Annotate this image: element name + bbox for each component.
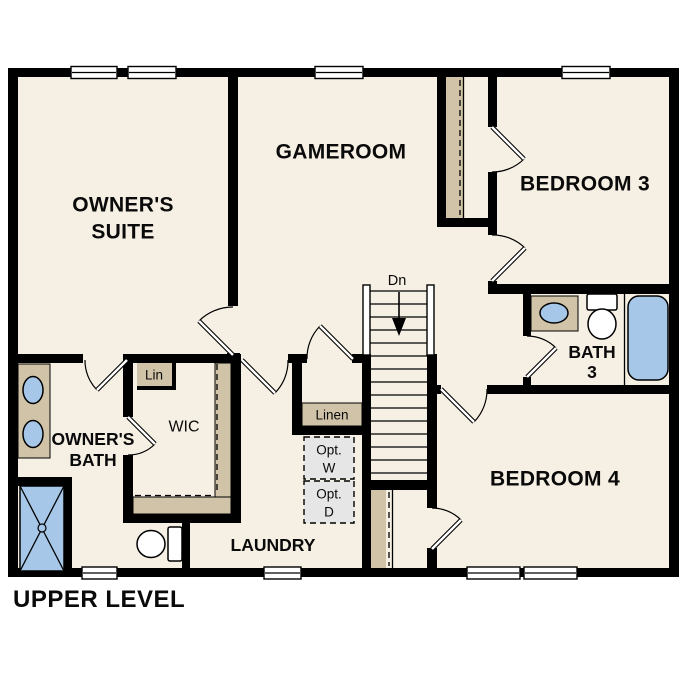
- window: [524, 567, 577, 579]
- optional-washer-label-line1: Opt.: [316, 443, 342, 458]
- window: [562, 67, 610, 79]
- optional-washer: Opt. W: [304, 437, 354, 479]
- bedroom3-closet-shelf: [446, 77, 464, 218]
- optional-washer-label-line2: W: [323, 461, 336, 476]
- stair-rail-right: [427, 285, 434, 355]
- optional-dryer: Opt. D: [304, 481, 354, 523]
- wall-stair-right: [427, 354, 437, 490]
- floorplan-page: Lin Linen Opt. W Opt. D: [0, 0, 687, 687]
- wall-suite-gameroom: [228, 77, 238, 306]
- lin-closet: Lin: [137, 363, 176, 390]
- room-label-wic: WIC: [168, 419, 199, 436]
- wall-wic-right: [231, 354, 241, 523]
- optional-dryer-label-line1: Opt.: [316, 487, 342, 502]
- room-label-owners-suite-line2: SUITE: [91, 221, 154, 244]
- owners-bath-shower: [20, 486, 64, 571]
- room-label-bedroom4: BEDROOM 4: [490, 468, 620, 491]
- lin-closet-label: Lin: [145, 368, 163, 383]
- room-label-laundry: LAUNDRY: [231, 535, 316, 555]
- window: [467, 567, 520, 579]
- room-label-bedroom3: BEDROOM 3: [520, 173, 650, 196]
- owners-bath-vanity: [18, 364, 50, 458]
- wall-bedroom4-north: [487, 385, 679, 394]
- linen-closet-label: Linen: [315, 408, 348, 423]
- stair-rail-left: [363, 285, 370, 355]
- room-label-bath3-line2: 3: [587, 362, 597, 382]
- stair-direction-label: Dn: [388, 273, 407, 289]
- window: [315, 67, 363, 79]
- window: [82, 567, 117, 579]
- bath3-tub: [628, 296, 668, 380]
- shower-drain-icon: [38, 524, 46, 532]
- floorplan-drawing: Lin Linen Opt. W Opt. D: [0, 0, 687, 687]
- room-label-gameroom: GAMEROOM: [276, 141, 407, 164]
- bath3-vanity: [531, 296, 578, 331]
- linen-closet: Linen: [302, 403, 362, 426]
- page-title: UPPER LEVEL: [13, 586, 185, 613]
- room-label-owners-bath-line2: BATH: [69, 450, 116, 470]
- sink-icon: [23, 421, 43, 448]
- window: [264, 567, 301, 579]
- bath3-toilet: [587, 294, 617, 339]
- wall-gameroom-closet: [437, 77, 446, 227]
- window: [71, 67, 117, 79]
- wall-bedroom3-south: [488, 284, 679, 294]
- wall-stair-left: [362, 354, 371, 568]
- sink-icon: [540, 303, 568, 323]
- sink-icon: [23, 377, 43, 404]
- room-label-owners-suite-line1: OWNER'S: [72, 194, 174, 217]
- room-label-bath3-line1: BATH: [568, 342, 615, 362]
- optional-dryer-label-line2: D: [324, 505, 334, 520]
- room-label-owners-bath-line1: OWNER'S: [52, 429, 135, 449]
- window: [128, 67, 176, 79]
